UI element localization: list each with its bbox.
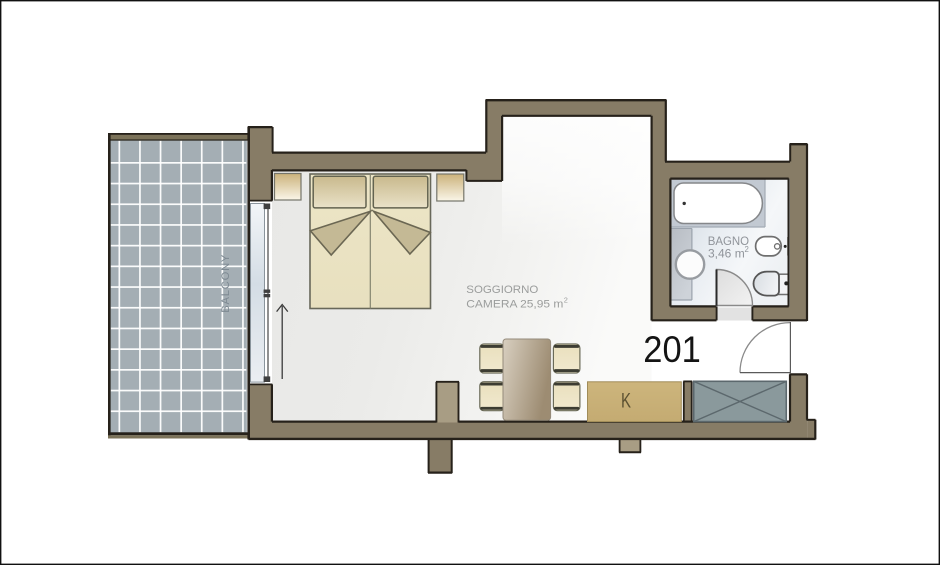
svg-text:BALCONY: BALCONY bbox=[220, 254, 232, 313]
svg-text:SOGGIORNO: SOGGIORNO bbox=[466, 284, 538, 296]
svg-text:CAMERA 25,95 m: CAMERA 25,95 m bbox=[466, 299, 563, 311]
svg-text:2: 2 bbox=[564, 295, 568, 304]
svg-text:201: 201 bbox=[643, 328, 701, 370]
svg-text:3,46 m: 3,46 m bbox=[708, 247, 745, 261]
svg-text:2: 2 bbox=[745, 245, 749, 254]
svg-text:K: K bbox=[621, 388, 631, 412]
